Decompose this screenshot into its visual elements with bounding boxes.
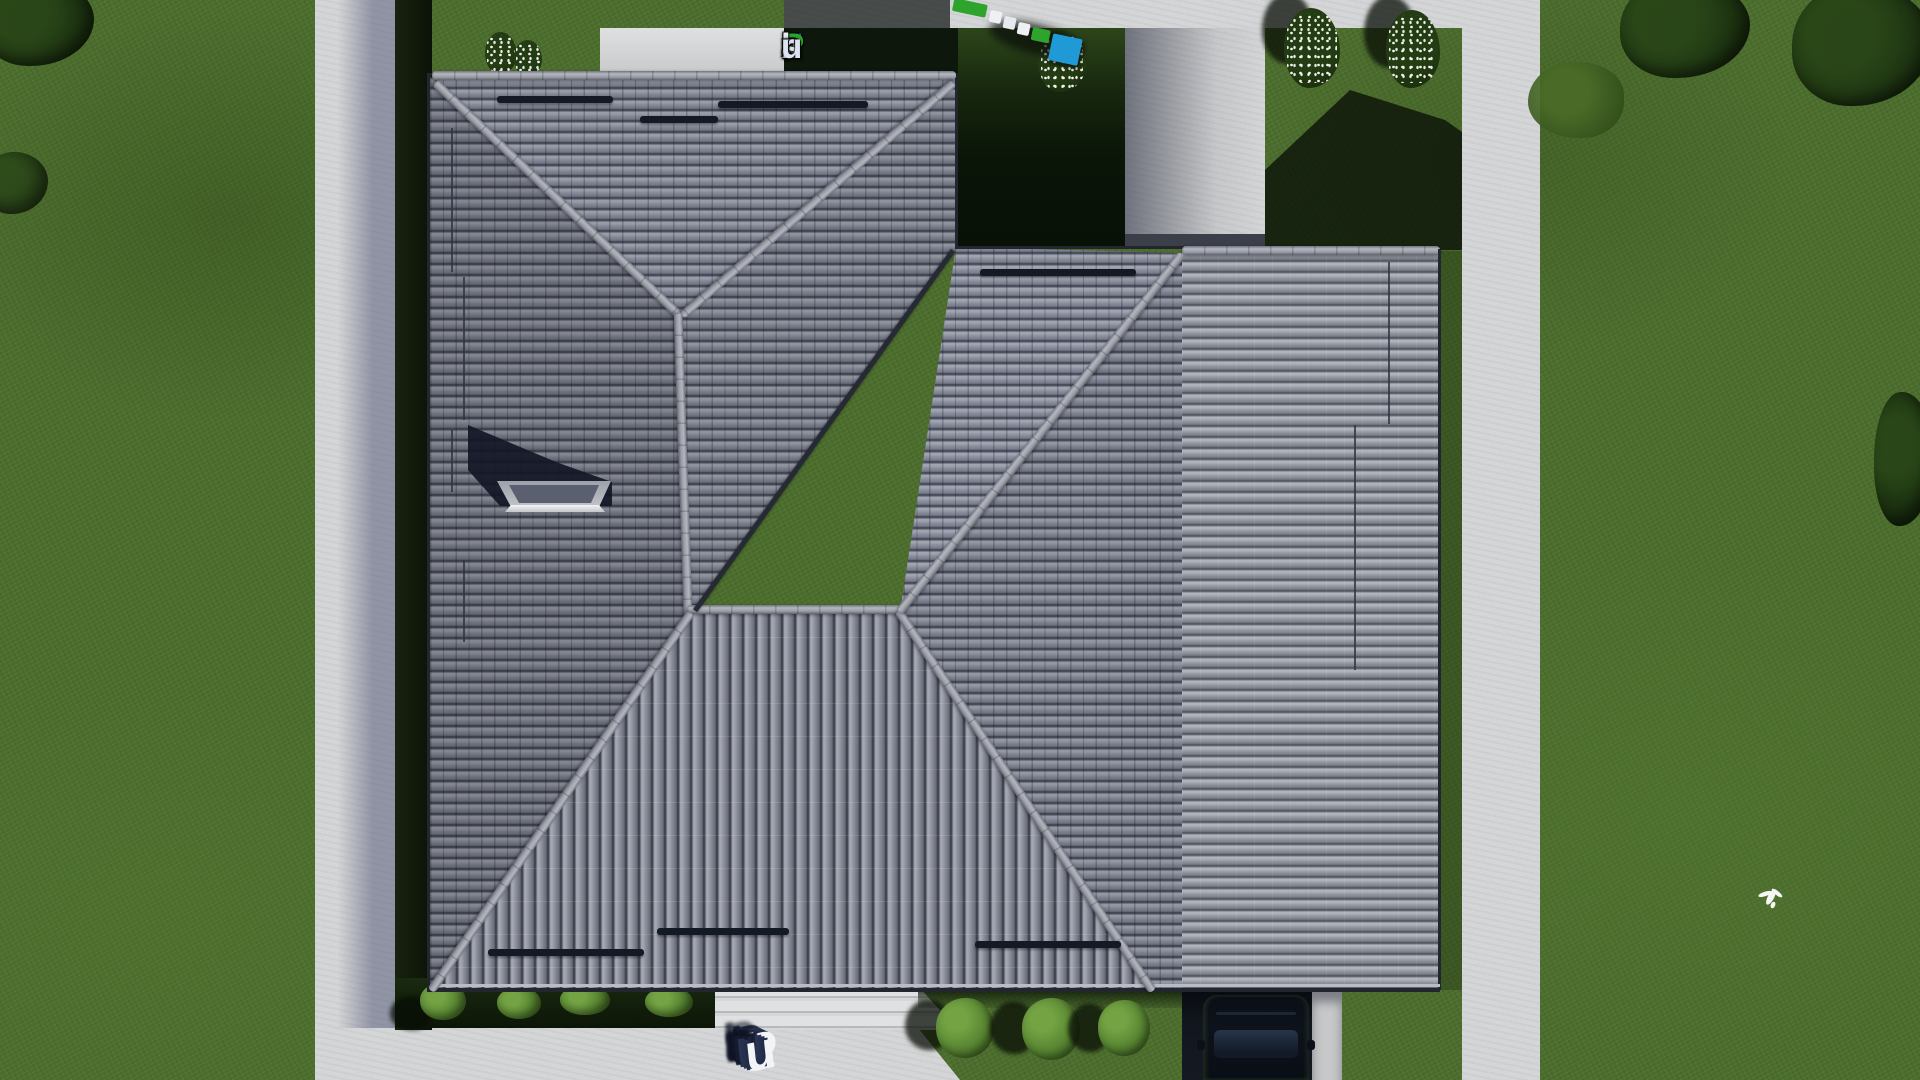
- skylight-sill: [505, 505, 605, 512]
- sign-white-block: [1002, 16, 1016, 30]
- garage-roof: [1182, 249, 1440, 990]
- garage-edge-south: [1182, 988, 1440, 992]
- snow-guard: [488, 949, 644, 956]
- flower-bush: [1386, 10, 1440, 88]
- roof-seam: [463, 560, 465, 642]
- car-mirror-right: [1307, 1040, 1315, 1050]
- sign-white-block: [1017, 22, 1031, 36]
- path-left-shadow: [315, 0, 395, 1030]
- roof-fascia-south: [430, 984, 1182, 987]
- garage-seam: [1354, 425, 1356, 670]
- green-bush: [936, 998, 994, 1058]
- tree: [1792, 0, 1920, 106]
- snow-guard: [657, 928, 789, 935]
- path-ne-pad-shadow: [1125, 28, 1265, 240]
- car-hood-line: [1216, 1012, 1296, 1015]
- snow-guard: [975, 941, 1121, 948]
- path-top-terrace: [600, 28, 785, 76]
- sign-green-bar: [952, 0, 988, 18]
- roof-edge-notch-top: [955, 246, 1184, 249]
- car-windshield: [1214, 1030, 1298, 1058]
- flying-bird: [1754, 880, 1788, 914]
- skylight-glass: [509, 485, 599, 503]
- brand-letter: u: [781, 26, 801, 68]
- ridge-north-eave: [432, 71, 956, 80]
- ground-letter: u: [742, 1018, 778, 1080]
- snow-guard: [718, 101, 868, 108]
- garage-seam: [1388, 262, 1390, 424]
- snow-guard: [640, 116, 718, 123]
- sign-green-bar: [1031, 27, 1051, 43]
- house-shadow-north: [784, 28, 958, 76]
- sign-blue-cube: [1048, 33, 1083, 66]
- path-bottom: [315, 1028, 960, 1080]
- path-right: [1462, 0, 1540, 1080]
- flower-bush: [1284, 8, 1340, 88]
- tree: [1874, 392, 1920, 526]
- roof-seam: [451, 430, 453, 492]
- roof-edge-south: [427, 988, 1185, 992]
- garage-fascia: [1182, 984, 1440, 987]
- garage-edge-east: [1438, 249, 1441, 990]
- driveway-curb: [1312, 988, 1342, 1080]
- grass-strip-east: [1440, 251, 1462, 990]
- snow-guard: [980, 269, 1136, 276]
- roof-edge-notch: [955, 73, 958, 249]
- car-mirror-left: [1197, 1040, 1205, 1050]
- path-top-strip-shadow: [784, 0, 950, 28]
- sign-white-block: [988, 10, 1002, 24]
- roof-seam: [451, 128, 453, 272]
- roof-seam: [463, 277, 465, 420]
- green-bush: [1098, 1000, 1150, 1056]
- aerial-house-render: FixPlans.ru Plans.ru: [0, 0, 1920, 1080]
- flower-bush: [485, 32, 517, 74]
- snow-guard: [497, 96, 613, 103]
- ridge-middle: [687, 605, 903, 614]
- roof-edge-west: [427, 74, 430, 990]
- garage-ridge: [1182, 246, 1440, 255]
- tree: [1528, 62, 1624, 138]
